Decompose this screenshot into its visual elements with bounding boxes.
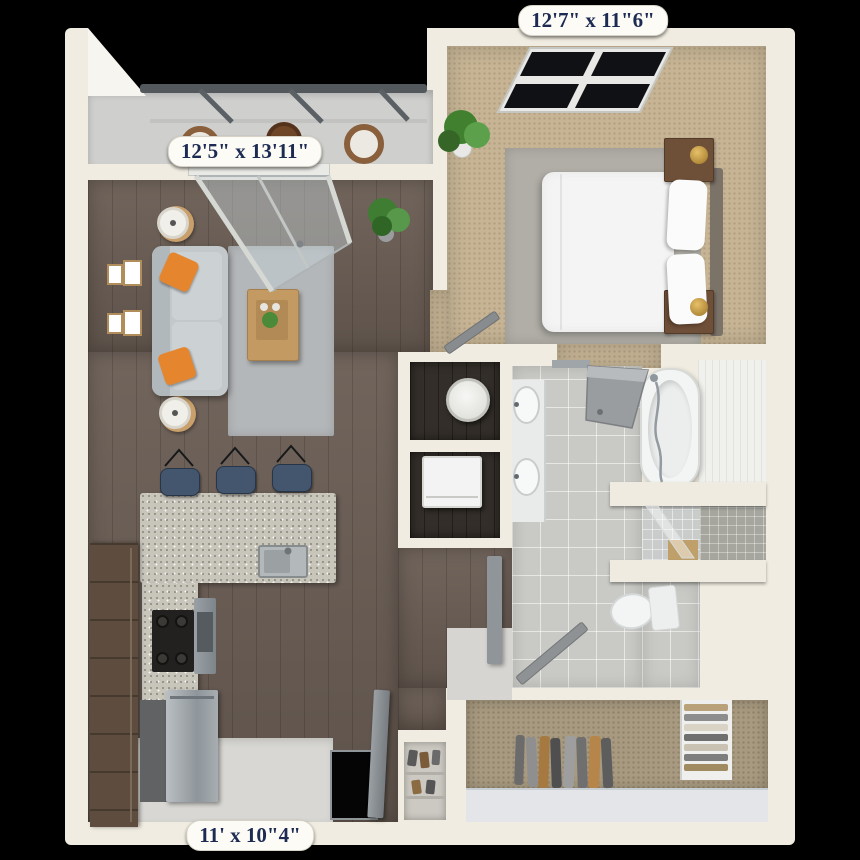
bath-threshold-floor	[447, 628, 512, 700]
oven-window	[197, 612, 213, 652]
hanging-clothes	[514, 735, 525, 785]
balcony-sky-opening	[88, 28, 427, 90]
wall-art	[123, 260, 142, 286]
folded-clothes	[684, 764, 728, 771]
dimension-label-bedroom: 12'7" x 11"6"	[518, 5, 668, 36]
bar-stool	[272, 464, 312, 492]
burner	[156, 652, 169, 665]
dishwasher	[166, 690, 218, 802]
dish	[272, 303, 280, 311]
half-wall-ledge	[610, 560, 766, 582]
nightstand	[664, 138, 714, 182]
burner	[156, 615, 169, 628]
wall-art	[123, 310, 142, 336]
kitchen-sink-basin	[264, 550, 290, 573]
balcony-railing	[140, 84, 427, 93]
hanging-clothes	[588, 736, 601, 788]
doorway-sill	[552, 360, 590, 368]
shower-seat	[668, 540, 698, 560]
hall-door-panel	[487, 556, 502, 664]
potted-plant-leaves	[372, 216, 392, 236]
hanging-clothes	[550, 738, 562, 788]
bedroom-doorway	[430, 290, 450, 352]
folded-clothes	[684, 724, 728, 731]
folded-clothes	[684, 734, 728, 741]
wall-art	[107, 313, 123, 334]
bedroom-plant-leaves	[464, 122, 490, 148]
closet-base-shelf	[466, 788, 768, 822]
balcony-chair	[344, 124, 384, 164]
toilet-tank	[648, 585, 680, 632]
toilet	[606, 582, 683, 637]
dish	[260, 303, 268, 311]
shoe	[425, 780, 435, 795]
bathtub-basin	[648, 380, 692, 478]
wall-art	[107, 264, 123, 285]
entry-hall-floor	[398, 688, 446, 730]
faucet	[514, 474, 519, 479]
bar-stool	[216, 466, 256, 494]
shoe-shelf	[404, 796, 446, 799]
water-heater	[446, 378, 490, 422]
folded-clothes	[684, 704, 728, 711]
floor-plan: 12'7" x 11"6" 12'5" x 13'11" 11' x 10"4"	[0, 0, 860, 860]
cabinet-handle-strip	[130, 548, 132, 822]
table-lamp	[690, 146, 708, 164]
duvet-fold	[560, 174, 562, 330]
folded-clothes	[684, 754, 728, 761]
shoe-shelf	[404, 772, 446, 775]
burner	[175, 615, 188, 628]
bar-stool	[160, 468, 200, 496]
table-lamp	[690, 298, 708, 316]
bedroom-plant-leaves	[438, 130, 460, 152]
half-wall-ledge	[610, 482, 766, 506]
dimension-label-living: 12'5" x 13'11"	[168, 136, 322, 167]
hanging-clothes	[538, 736, 550, 788]
dishwasher-handle	[170, 696, 214, 699]
floor-lamp-finial	[170, 220, 176, 226]
table-plant	[262, 312, 278, 328]
shoe	[411, 779, 422, 794]
faucet	[514, 402, 519, 407]
burner	[175, 652, 188, 665]
bed-pillow	[666, 179, 708, 251]
shoe	[431, 750, 440, 766]
washer-lid-seam	[426, 496, 478, 498]
shoe	[419, 752, 430, 769]
washer	[422, 456, 482, 508]
folded-clothes	[684, 714, 728, 721]
folded-clothes	[684, 744, 728, 751]
dimension-label-kitchen: 11' x 10"4"	[186, 820, 314, 851]
hanging-clothes	[576, 737, 588, 788]
floor-lamp-finial	[172, 410, 178, 416]
